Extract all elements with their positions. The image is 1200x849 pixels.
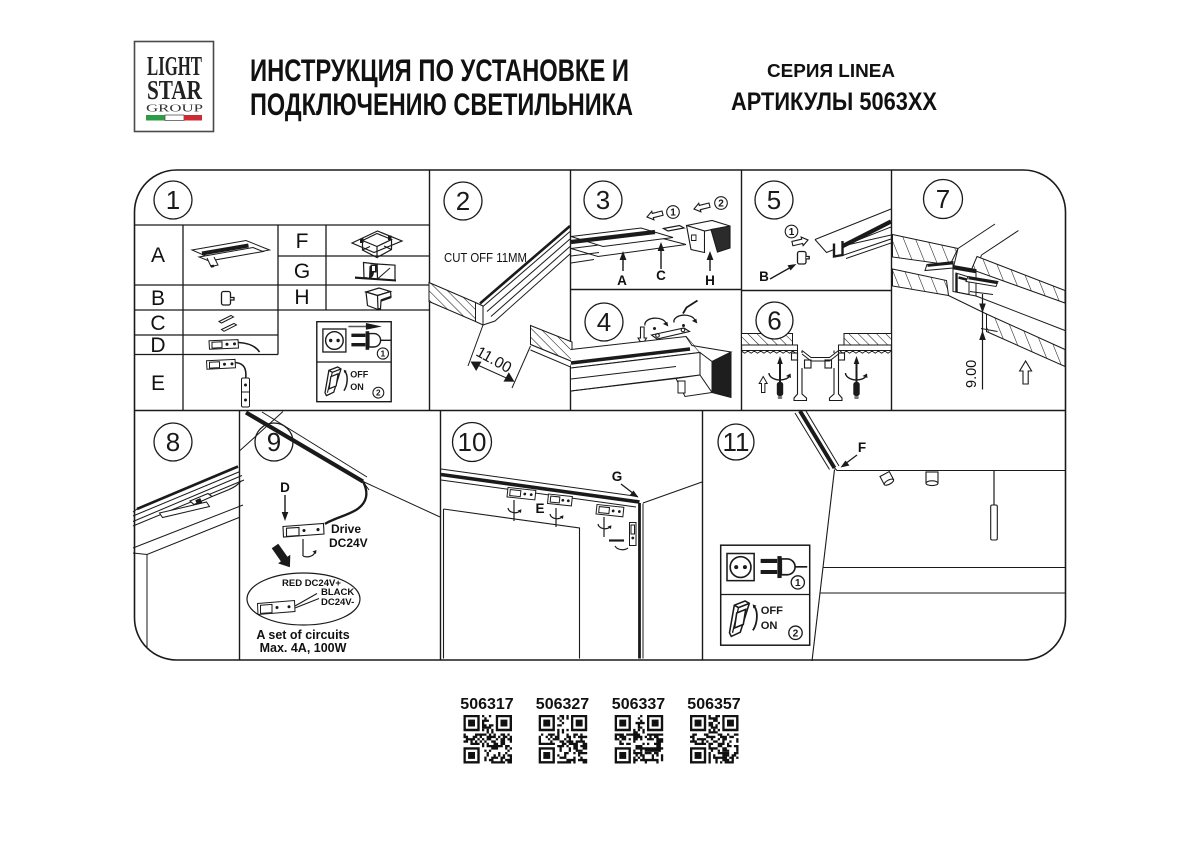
svg-text:1: 1 <box>795 578 801 589</box>
svg-text:Max. 4A, 100W: Max. 4A, 100W <box>260 641 347 655</box>
svg-text:3: 3 <box>596 185 610 215</box>
svg-text:ПОДКЛЮЧЕНИЮ СВЕТИЛЬНИКА: ПОДКЛЮЧЕНИЮ СВЕТИЛЬНИКА <box>250 86 633 122</box>
svg-text:DC24V-: DC24V- <box>321 597 354 608</box>
svg-text:1: 1 <box>670 208 676 219</box>
svg-text:B: B <box>759 269 769 284</box>
svg-text:E: E <box>535 501 544 516</box>
svg-text:2: 2 <box>456 186 470 216</box>
svg-text:6: 6 <box>767 306 781 336</box>
svg-text:STAR: STAR <box>147 75 202 105</box>
svg-text:Drive: Drive <box>331 522 361 536</box>
svg-text:4: 4 <box>597 307 611 337</box>
svg-text:GROUP: GROUP <box>146 103 203 115</box>
svg-text:2: 2 <box>793 628 799 639</box>
svg-text:F: F <box>858 440 866 455</box>
svg-text:B: B <box>151 287 165 310</box>
svg-text:ON: ON <box>350 382 364 392</box>
svg-text:506317: 506317 <box>460 696 513 713</box>
svg-text:11: 11 <box>723 427 750 457</box>
svg-text:H: H <box>294 286 309 309</box>
svg-text:506357: 506357 <box>687 696 740 713</box>
svg-text:A set of circuits: A set of circuits <box>256 628 349 642</box>
svg-text:1: 1 <box>381 349 386 359</box>
svg-text:1: 1 <box>166 185 180 215</box>
svg-text:DC24V: DC24V <box>329 536 368 550</box>
svg-text:H: H <box>705 273 715 288</box>
svg-text:7: 7 <box>936 184 950 214</box>
svg-text:9.00: 9.00 <box>964 360 980 388</box>
svg-text:5: 5 <box>767 185 781 215</box>
svg-text:1: 1 <box>789 227 795 238</box>
svg-text:D: D <box>280 480 290 495</box>
svg-text:10: 10 <box>458 427 487 457</box>
svg-text:2: 2 <box>718 199 724 210</box>
svg-text:2: 2 <box>376 389 381 398</box>
svg-text:506337: 506337 <box>612 696 665 713</box>
svg-text:E: E <box>151 372 165 395</box>
svg-text:G: G <box>612 469 623 484</box>
svg-text:8: 8 <box>166 427 180 457</box>
svg-text:G: G <box>294 260 310 283</box>
svg-text:A: A <box>151 244 165 267</box>
svg-text:506327: 506327 <box>536 696 589 713</box>
svg-text:D: D <box>150 334 165 357</box>
svg-text:ON: ON <box>761 620 778 632</box>
svg-text:OFF: OFF <box>350 370 369 380</box>
svg-text:OFF: OFF <box>761 605 783 617</box>
svg-text:A: A <box>617 273 627 288</box>
svg-text:CUT OFF 11MM: CUT OFF 11MM <box>444 250 527 265</box>
svg-text:C: C <box>150 312 165 335</box>
svg-text:C: C <box>656 268 666 283</box>
svg-text:F: F <box>296 230 309 253</box>
svg-text:ИНСТРУКЦИЯ ПО УСТАНОВКЕ И: ИНСТРУКЦИЯ ПО УСТАНОВКЕ И <box>250 52 629 88</box>
svg-text:СЕРИЯ LINEA: СЕРИЯ LINEA <box>767 60 895 81</box>
svg-text:АРТИКУЛЫ 5063XX: АРТИКУЛЫ 5063XX <box>731 88 937 116</box>
